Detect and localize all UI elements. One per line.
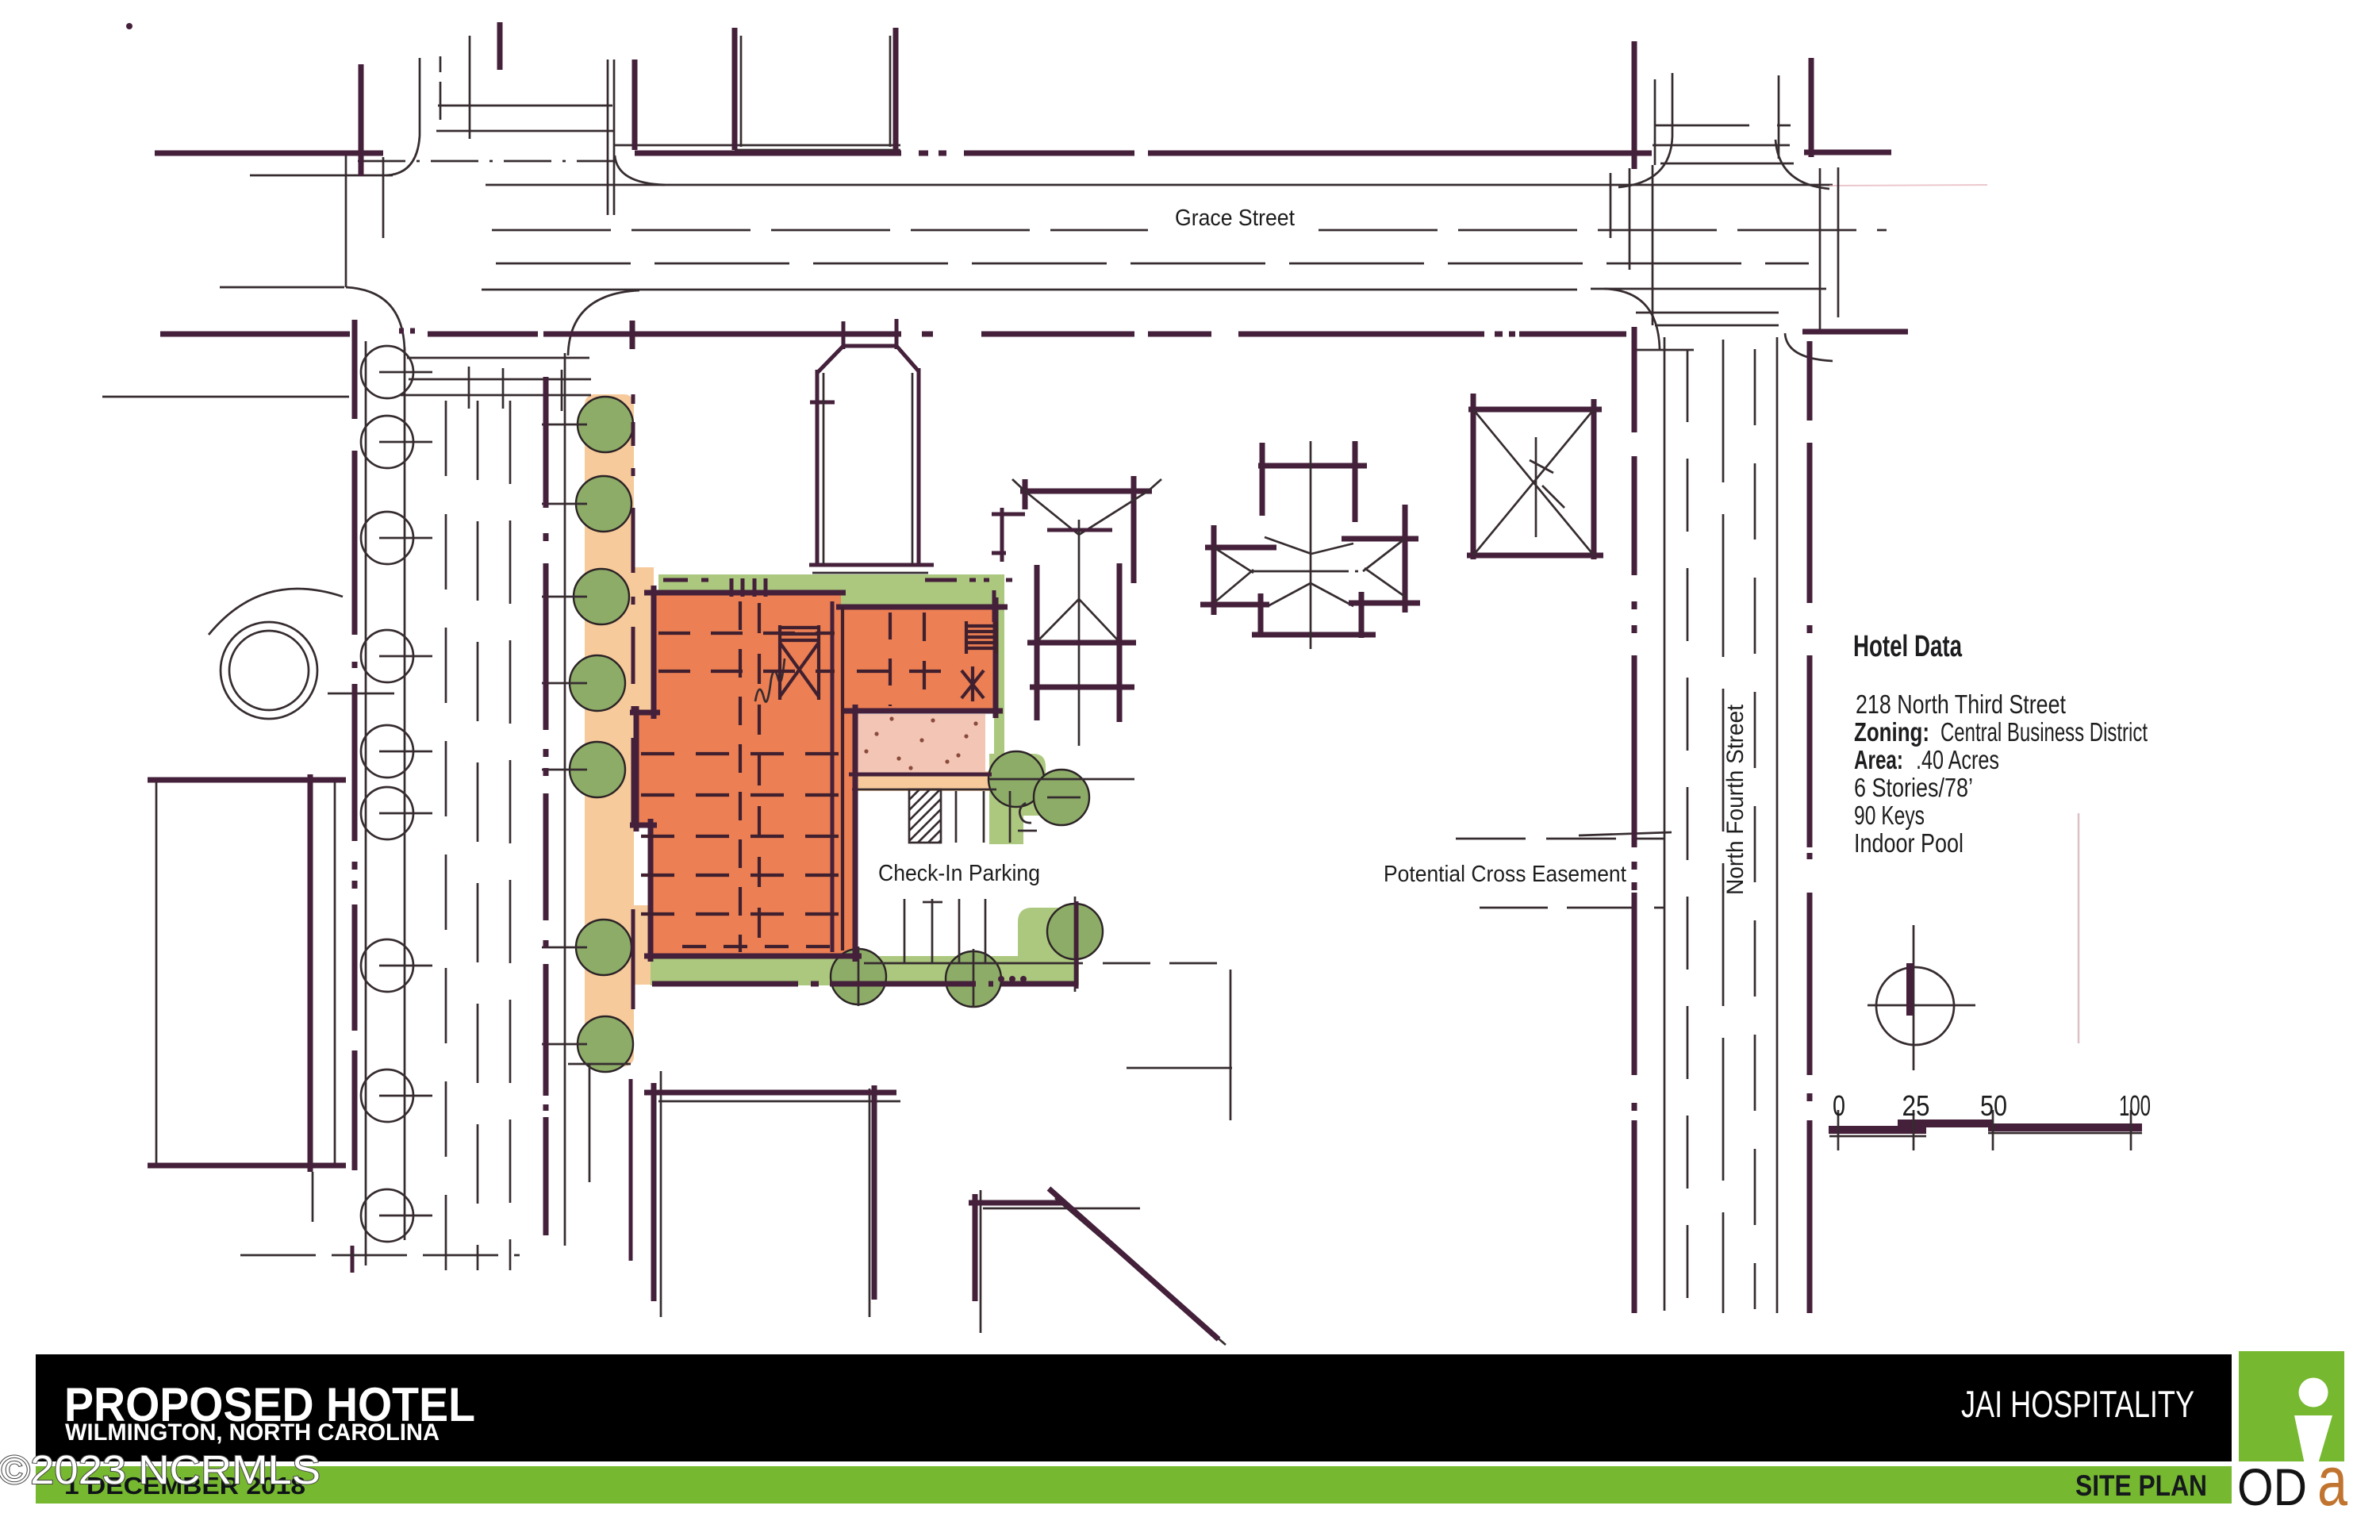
svg-text:SITE PLAN: SITE PLAN <box>2075 1469 2207 1502</box>
svg-text:Grace Street: Grace Street <box>1175 205 1295 231</box>
svg-text:90 Keys: 90 Keys <box>1854 801 1925 830</box>
svg-text:WILMINGTON, NORTH CAROLINA: WILMINGTON, NORTH CAROLINA <box>65 1419 440 1446</box>
svg-text:100: 100 <box>2119 1089 2151 1122</box>
svg-text:218 North Third Street: 218 North Third Street <box>1856 689 2066 719</box>
svg-text:a: a <box>2317 1442 2347 1520</box>
svg-text:.40 Acres: .40 Acres <box>1916 745 1999 774</box>
svg-text:0: 0 <box>1833 1089 1845 1122</box>
svg-text:Area:: Area: <box>1854 745 1903 774</box>
svg-text:6 Stories/78’: 6 Stories/78’ <box>1854 773 1973 802</box>
svg-text:Zoning:: Zoning: <box>1854 717 1929 747</box>
svg-text:Indoor Pool: Indoor Pool <box>1854 828 1963 858</box>
svg-text:25: 25 <box>1902 1089 1930 1122</box>
svg-text:Check-In Parking: Check-In Parking <box>878 861 1040 886</box>
svg-text:Hotel Data: Hotel Data <box>1853 630 1963 663</box>
svg-text:Potential Cross Easement: Potential Cross Easement <box>1384 862 1626 887</box>
svg-text:50: 50 <box>1980 1089 2007 1122</box>
svg-text:OD: OD <box>2237 1457 2307 1516</box>
svg-text:JAI HOSPITALITY: JAI HOSPITALITY <box>1961 1383 2194 1425</box>
svg-text:North Fourth Street: North Fourth Street <box>1722 704 1749 895</box>
svg-text:©2023 NCRMLS: ©2023 NCRMLS <box>0 1447 321 1492</box>
svg-text:Central Business District: Central Business District <box>1940 717 2148 747</box>
